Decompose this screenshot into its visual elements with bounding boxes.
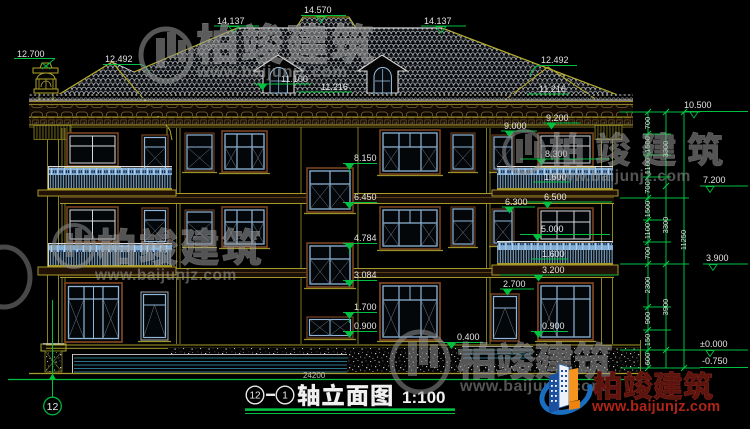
svg-text:±0.000: ±0.000 [700,339,727,349]
svg-text:www.baijunjz.com: www.baijunjz.com [94,267,237,284]
svg-text:www.baijunjz.com: www.baijunjz.com [459,378,606,395]
svg-text:12.492: 12.492 [541,55,569,65]
svg-text:3.900: 3.900 [706,253,729,263]
svg-text:24200: 24200 [303,371,326,380]
svg-text:-0.750: -0.750 [702,356,728,366]
svg-text:www.baijunjz.com: www.baijunjz.com [196,63,347,81]
svg-text:700: 700 [643,117,652,130]
svg-text:5.000: 5.000 [541,224,564,234]
svg-text:1.600: 1.600 [542,249,565,259]
svg-text:0.900: 0.900 [542,321,565,331]
svg-text:1.700: 1.700 [354,302,377,312]
svg-text:2300: 2300 [643,277,652,294]
svg-text:900: 900 [643,312,652,325]
svg-text:600: 600 [643,353,652,366]
svg-text:150: 150 [643,334,652,347]
svg-text:2.700: 2.700 [503,279,526,289]
svg-text:0.400: 0.400 [457,332,480,342]
svg-text:6.300: 6.300 [505,197,528,207]
svg-text:11250: 11250 [679,230,688,250]
svg-text:3.084: 3.084 [354,270,377,280]
svg-text:6.450: 6.450 [354,192,377,202]
svg-text:12.700: 12.700 [17,49,45,59]
svg-text:www.baijunjz.com: www.baijunjz.com [591,399,720,415]
svg-text:www.baijunjz.com: www.baijunjz.com [548,168,691,185]
svg-text:3.200: 3.200 [542,265,565,275]
svg-text:7.200: 7.200 [703,175,726,185]
svg-text:11.216: 11.216 [321,82,348,92]
svg-text:12: 12 [47,401,59,413]
svg-text:11.216: 11.216 [539,84,566,94]
svg-text:8.150: 8.150 [354,153,377,163]
svg-text:6.500: 6.500 [544,192,567,202]
svg-text:9.200: 9.200 [546,113,569,123]
svg-text:1100: 1100 [643,223,652,239]
svg-text:1: 1 [282,391,288,402]
svg-text:14.570: 14.570 [304,5,332,15]
svg-text:12.492: 12.492 [105,54,133,64]
svg-text:10.500: 10.500 [684,100,712,110]
svg-text:4.784: 4.784 [354,233,377,243]
svg-text:700: 700 [643,247,652,260]
svg-text:0.900: 0.900 [354,321,377,331]
svg-text:3900: 3900 [661,299,670,316]
svg-text:12: 12 [249,391,261,402]
svg-text:1500: 1500 [643,201,652,218]
svg-text:14.137: 14.137 [424,16,452,26]
svg-text:3300: 3300 [661,217,670,234]
